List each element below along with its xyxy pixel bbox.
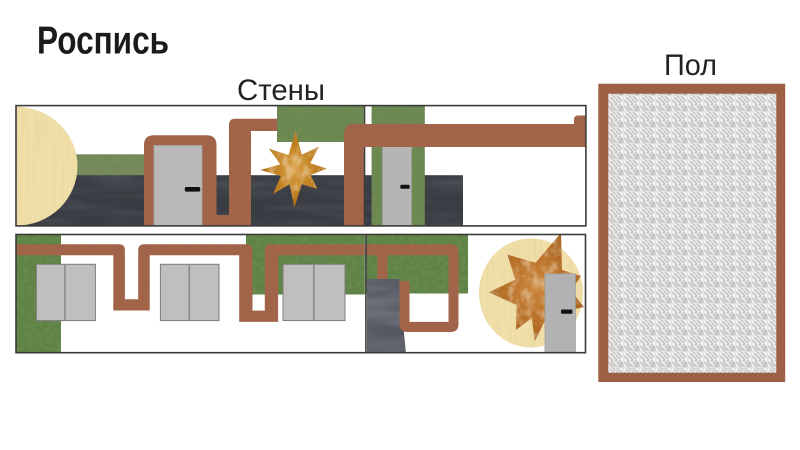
svg-text:Пол: Пол — [664, 49, 717, 82]
svg-text:Стены: Стены — [237, 74, 325, 107]
svg-text:Роспись: Роспись — [37, 20, 169, 63]
